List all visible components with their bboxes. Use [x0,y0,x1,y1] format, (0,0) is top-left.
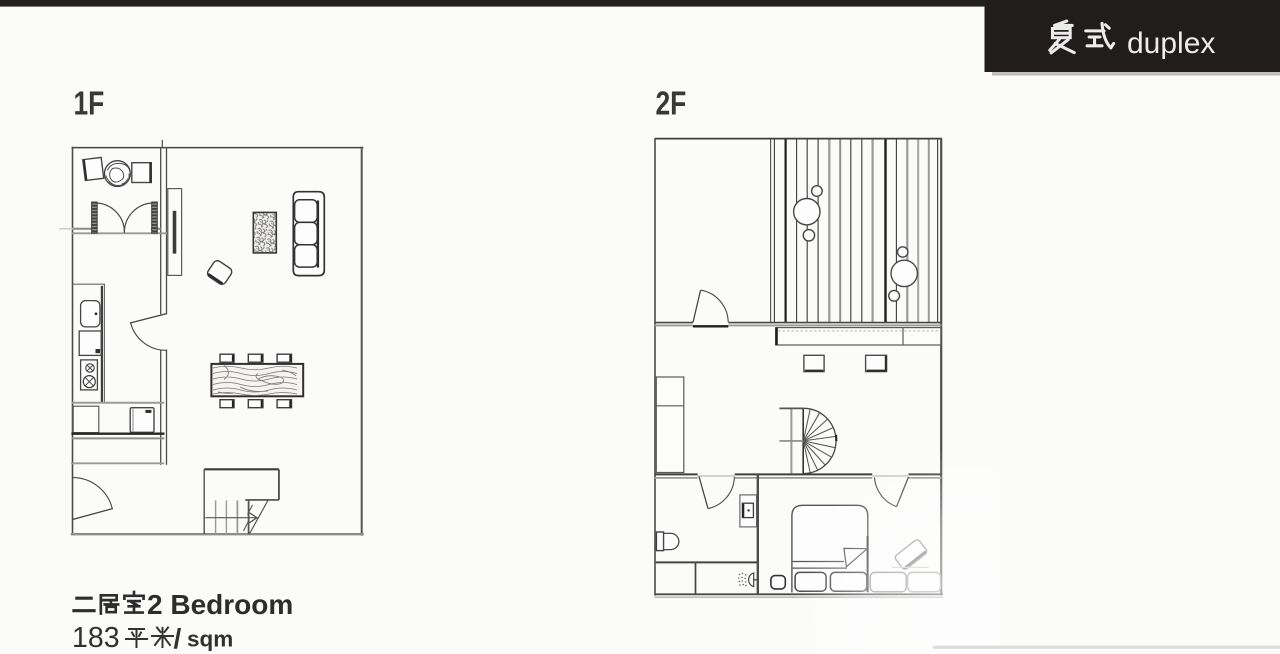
svg-text:/: / [174,623,182,654]
svg-text:2F: 2F [656,86,687,122]
svg-text:2 Bedroom: 2 Bedroom [147,589,293,620]
svg-text:1F: 1F [74,86,105,122]
svg-text:sqm: sqm [187,627,233,652]
svg-text:183: 183 [72,622,120,654]
svg-text:duplex: duplex [1127,27,1215,60]
